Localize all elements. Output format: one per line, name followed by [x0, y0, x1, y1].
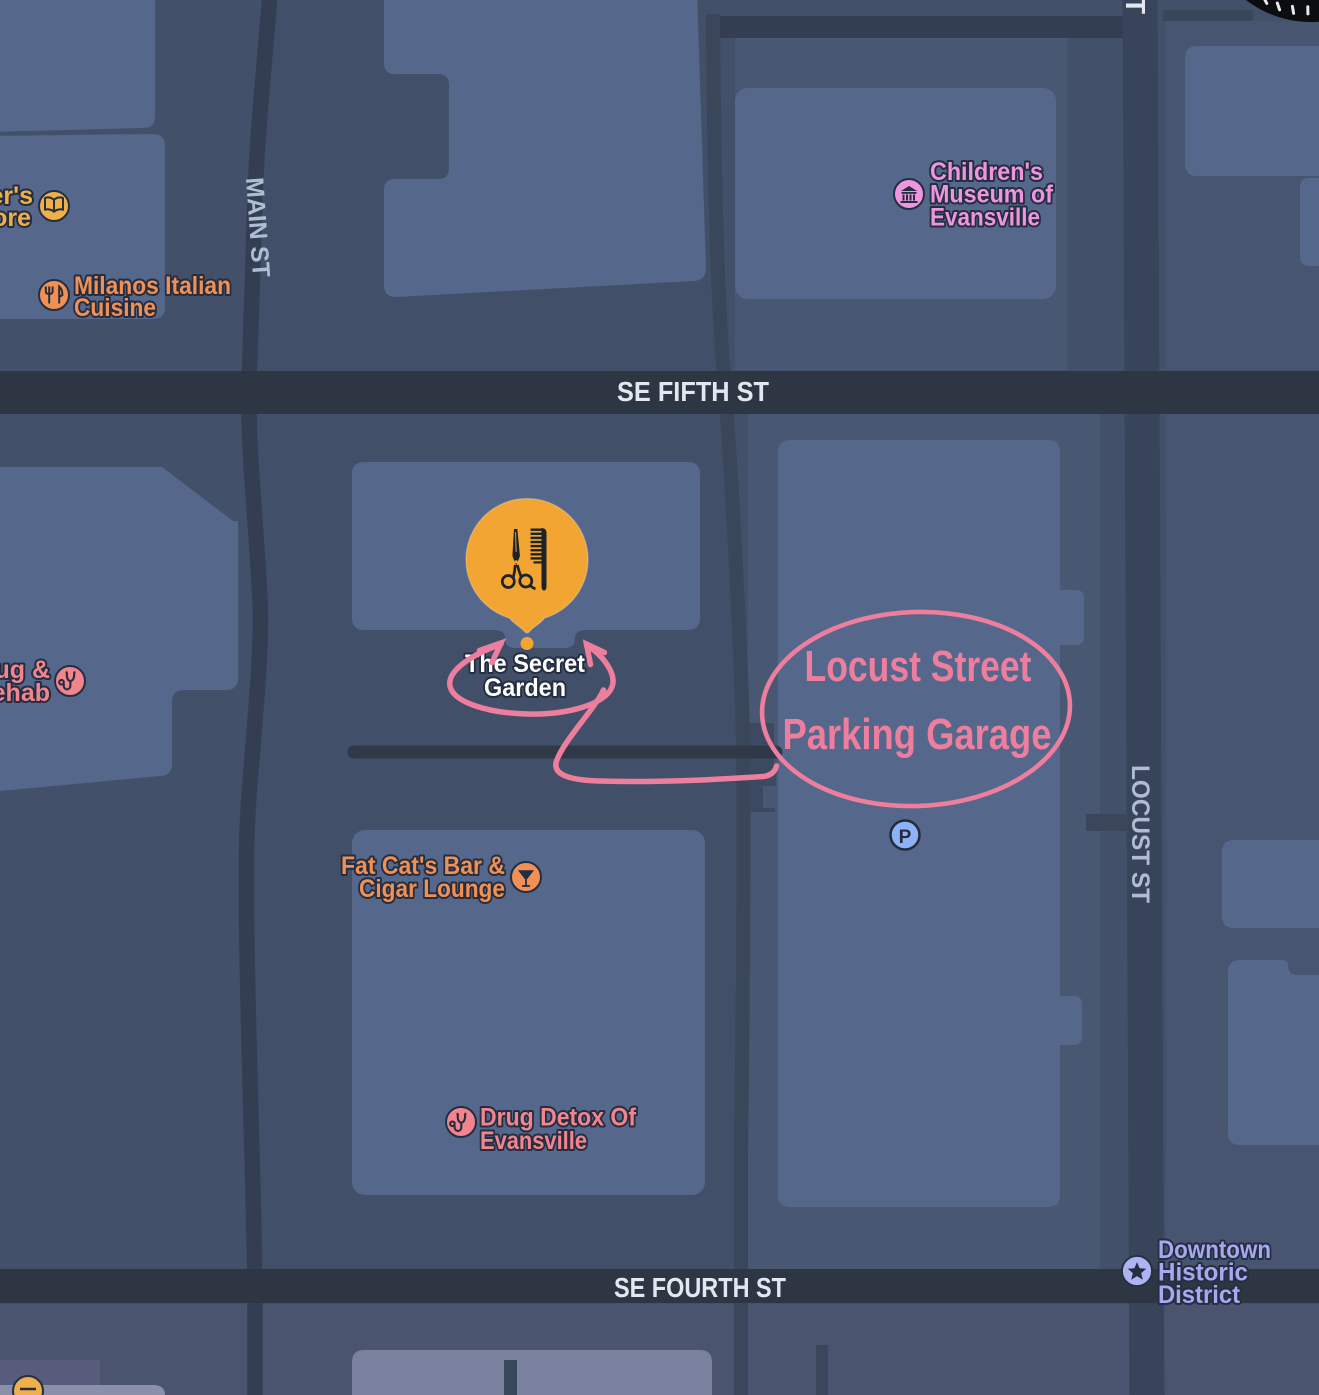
svg-text:Garden: Garden — [484, 674, 566, 702]
svg-text:P: P — [899, 827, 912, 848]
svg-text:SE FOURTH ST: SE FOURTH ST — [614, 1272, 786, 1303]
svg-text:T: T — [1120, 0, 1151, 14]
svg-text:LOCUST ST: LOCUST ST — [1126, 765, 1154, 903]
svg-text:Cuisine: Cuisine — [74, 294, 156, 322]
svg-text:Evansville: Evansville — [930, 204, 1040, 232]
svg-text:Evansville: Evansville — [480, 1127, 587, 1155]
svg-text:District: District — [1158, 1281, 1241, 1309]
svg-text:Locust Street: Locust Street — [805, 642, 1032, 691]
svg-text:Cigar Lounge: Cigar Lounge — [359, 875, 505, 903]
svg-text:Parking Garage: Parking Garage — [783, 710, 1052, 759]
svg-text:ehab: ehab — [0, 679, 50, 707]
svg-text:SE FIFTH ST: SE FIFTH ST — [617, 376, 769, 407]
svg-text:ore: ore — [0, 204, 31, 232]
